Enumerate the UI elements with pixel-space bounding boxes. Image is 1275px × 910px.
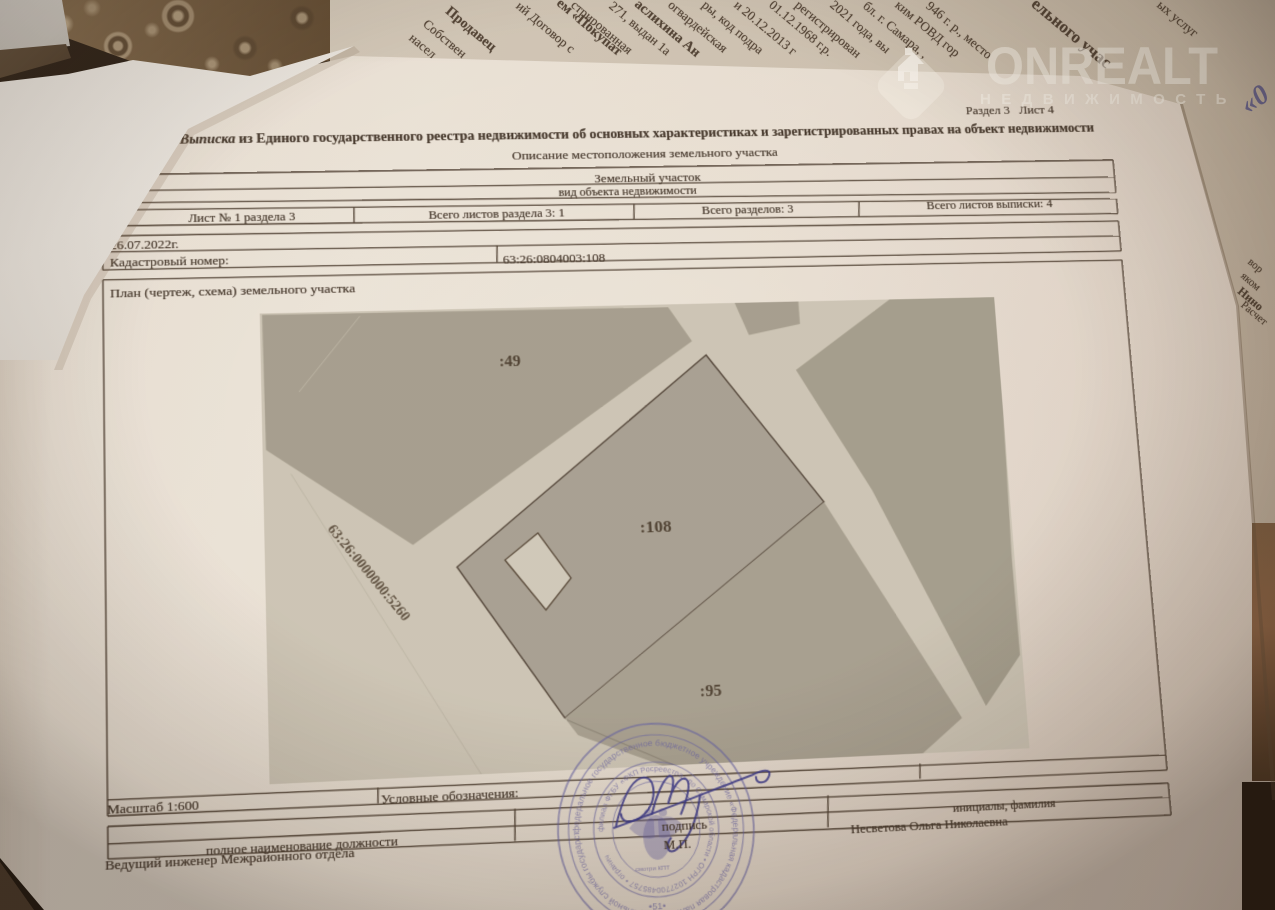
svg-text:•51•: •51• [648,901,666,910]
svg-text::108: :108 [639,517,672,537]
svg-text::95: :95 [699,683,722,701]
svg-text:ONREALT: ONREALT [986,36,1218,95]
svg-text::49: :49 [499,353,521,370]
svg-text:НЕДВИЖИМОСТЬ: НЕДВИЖИМОСТЬ [980,91,1237,108]
svg-text:смотри КПТ: смотри КПТ [635,865,670,873]
